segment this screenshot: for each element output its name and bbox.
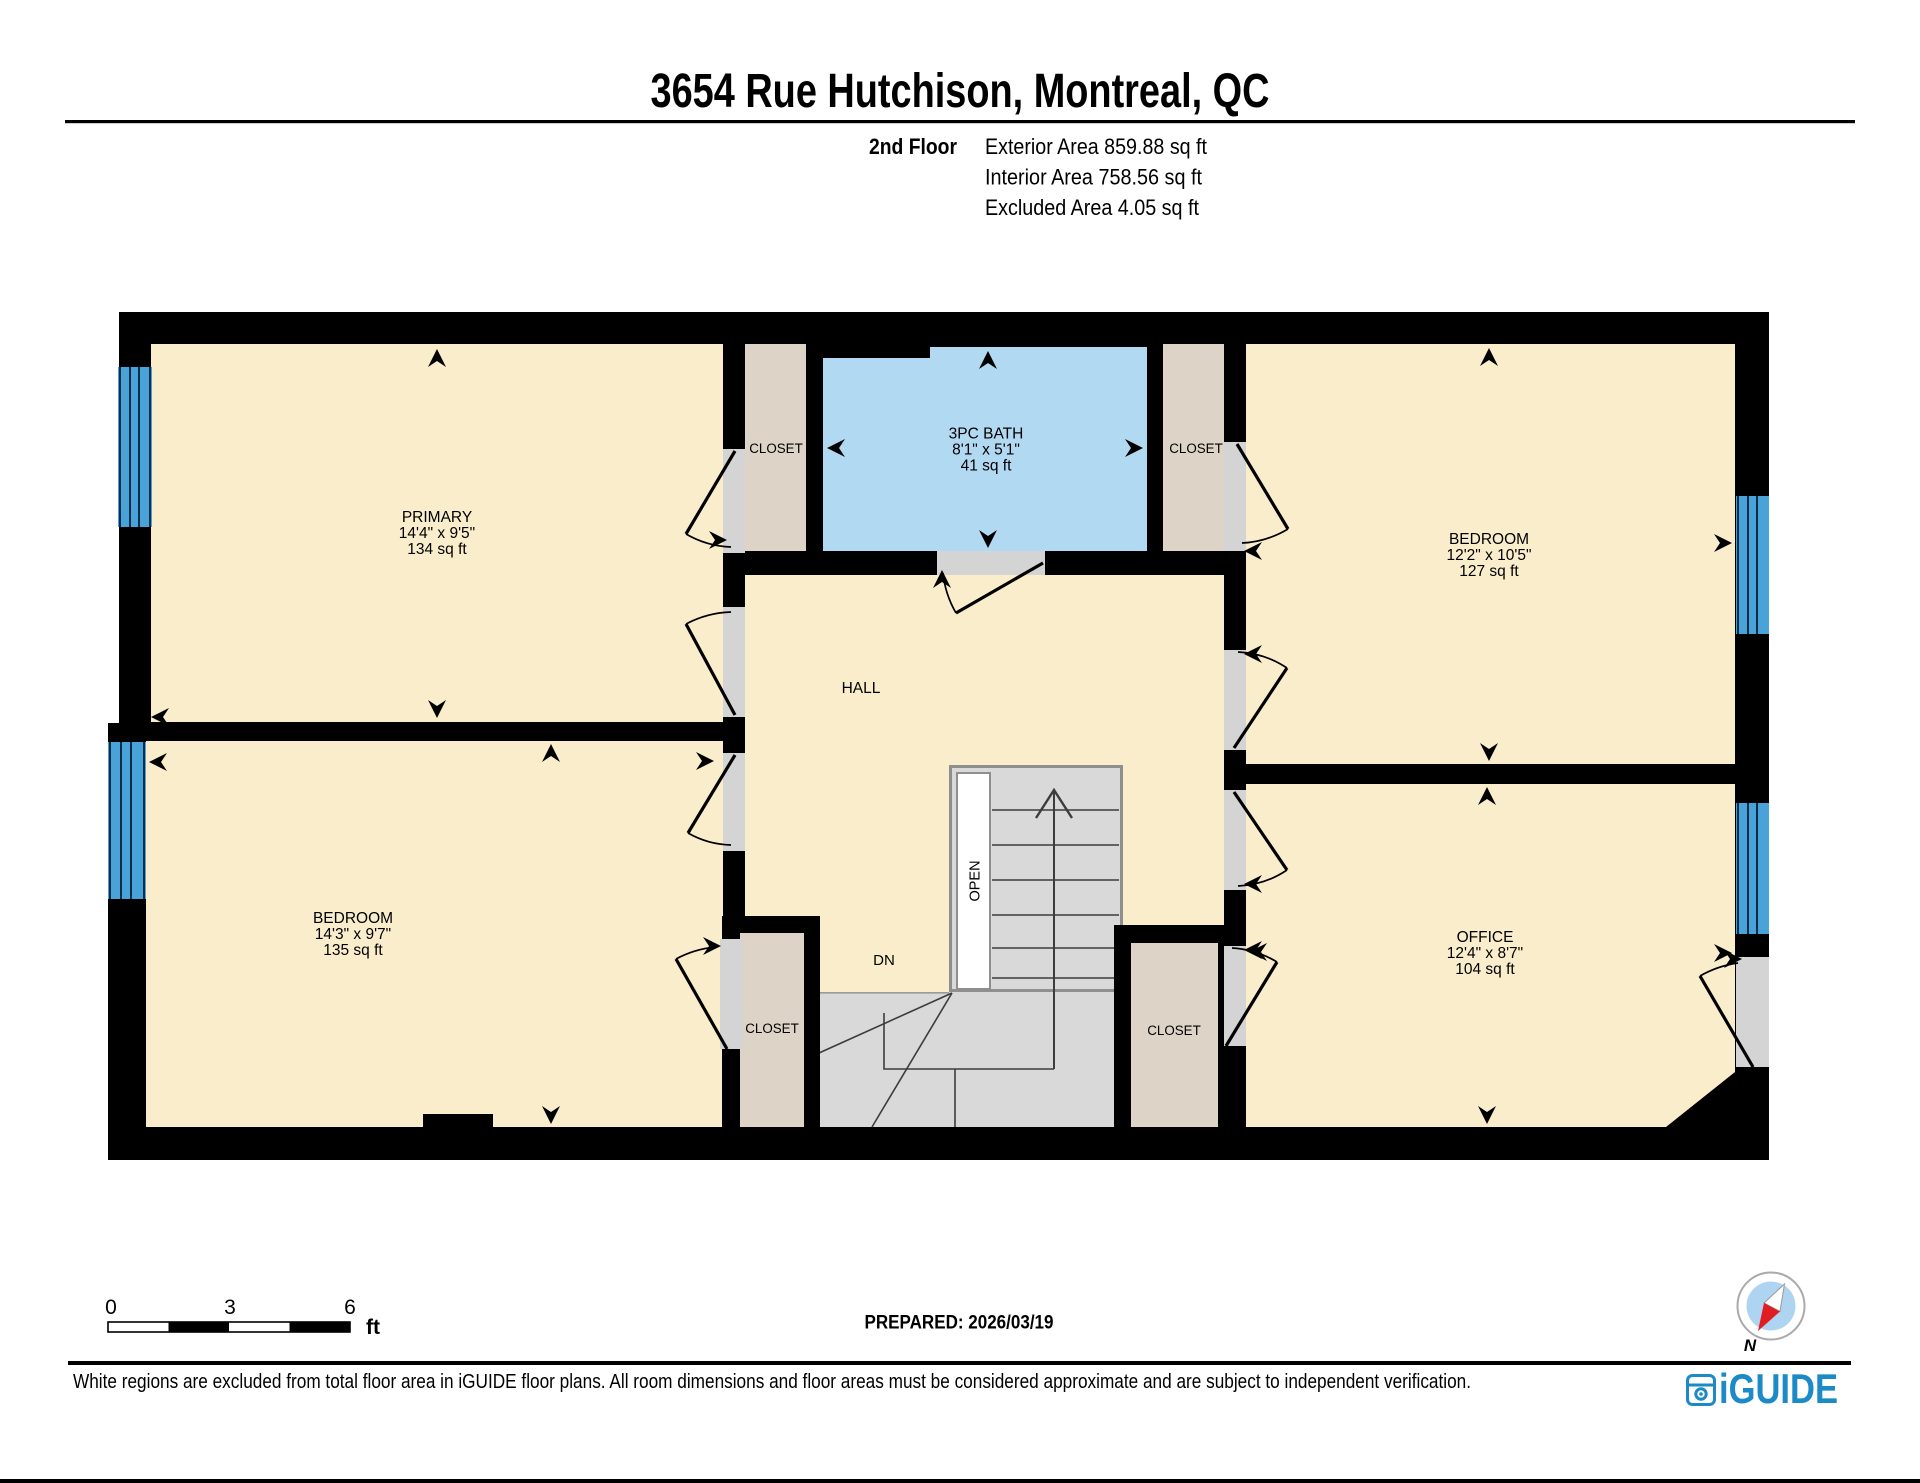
svg-text:104 sq ft: 104 sq ft xyxy=(1455,961,1515,978)
svg-text:CLOSET: CLOSET xyxy=(1147,1023,1201,1038)
svg-text:N: N xyxy=(1744,1336,1757,1355)
svg-text:BEDROOM: BEDROOM xyxy=(313,910,393,927)
svg-text:12'4" x 8'7": 12'4" x 8'7" xyxy=(1447,945,1523,962)
svg-text:OPEN: OPEN xyxy=(968,860,984,901)
svg-text:3: 3 xyxy=(224,1296,236,1319)
svg-text:White regions are excluded fro: White regions are excluded from total fl… xyxy=(73,1370,1471,1393)
svg-text:CLOSET: CLOSET xyxy=(1169,441,1223,456)
svg-text:CLOSET: CLOSET xyxy=(745,1021,799,1036)
svg-text:iGUIDE: iGUIDE xyxy=(1719,1365,1838,1412)
svg-text:12'2" x 10'5": 12'2" x 10'5" xyxy=(1446,547,1531,564)
svg-text:0: 0 xyxy=(105,1296,117,1319)
svg-text:CLOSET: CLOSET xyxy=(749,441,803,456)
svg-text:DN: DN xyxy=(873,952,895,969)
svg-text:PRIMARY: PRIMARY xyxy=(402,509,472,526)
svg-text:HALL: HALL xyxy=(842,680,881,697)
svg-text:PREPARED: 2026/03/19: PREPARED: 2026/03/19 xyxy=(865,1313,1054,1334)
svg-text:OFFICE: OFFICE xyxy=(1457,929,1514,946)
svg-text:ft: ft xyxy=(366,1316,380,1339)
svg-text:Exterior Area 859.88 sq ft: Exterior Area 859.88 sq ft xyxy=(985,134,1207,159)
svg-text:3654 Rue Hutchison, Montreal,: 3654 Rue Hutchison, Montreal, QC xyxy=(651,65,1270,118)
svg-text:127 sq ft: 127 sq ft xyxy=(1459,563,1519,580)
svg-text:14'3" x 9'7": 14'3" x 9'7" xyxy=(315,926,391,943)
svg-text:14'4" x 9'5": 14'4" x 9'5" xyxy=(399,525,475,542)
svg-text:Excluded Area 4.05 sq ft: Excluded Area 4.05 sq ft xyxy=(985,195,1199,220)
svg-text:3PC BATH: 3PC BATH xyxy=(949,426,1024,443)
svg-text:134 sq ft: 134 sq ft xyxy=(407,541,467,558)
svg-text:Interior Area 758.56 sq ft: Interior Area 758.56 sq ft xyxy=(985,165,1202,190)
svg-text:8'1" x 5'1": 8'1" x 5'1" xyxy=(952,442,1020,459)
svg-text:135 sq ft: 135 sq ft xyxy=(323,942,383,959)
svg-text:2nd Floor: 2nd Floor xyxy=(869,134,957,159)
svg-text:41 sq ft: 41 sq ft xyxy=(961,458,1013,475)
svg-text:BEDROOM: BEDROOM xyxy=(1449,531,1529,548)
svg-text:6: 6 xyxy=(344,1296,356,1319)
